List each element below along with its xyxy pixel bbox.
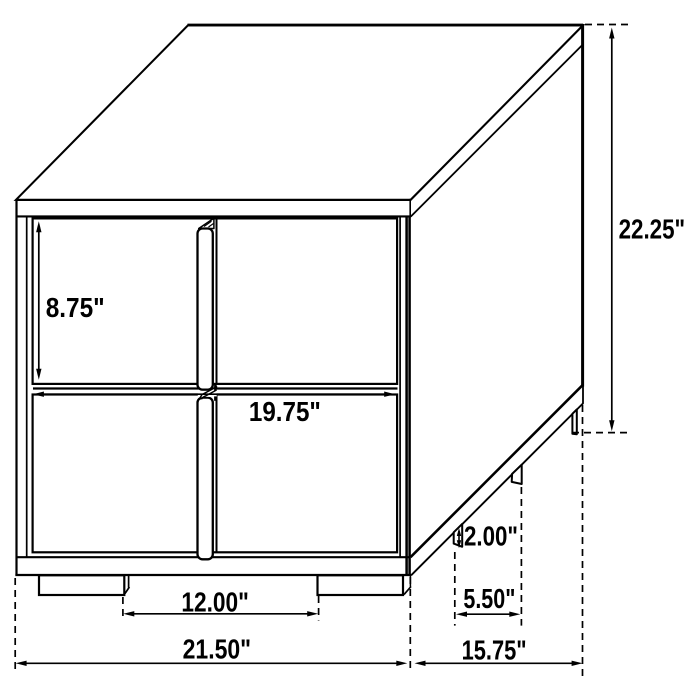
- svg-text:15.75": 15.75": [462, 635, 527, 666]
- svg-text:21.50": 21.50": [183, 633, 252, 664]
- svg-text:19.75": 19.75": [249, 396, 321, 427]
- svg-text:5.50": 5.50": [463, 583, 515, 614]
- svg-text:12.00": 12.00": [181, 586, 249, 617]
- svg-text:22.25": 22.25": [619, 213, 686, 244]
- svg-text:8.75": 8.75": [46, 292, 105, 323]
- svg-text:2.00": 2.00": [464, 520, 518, 551]
